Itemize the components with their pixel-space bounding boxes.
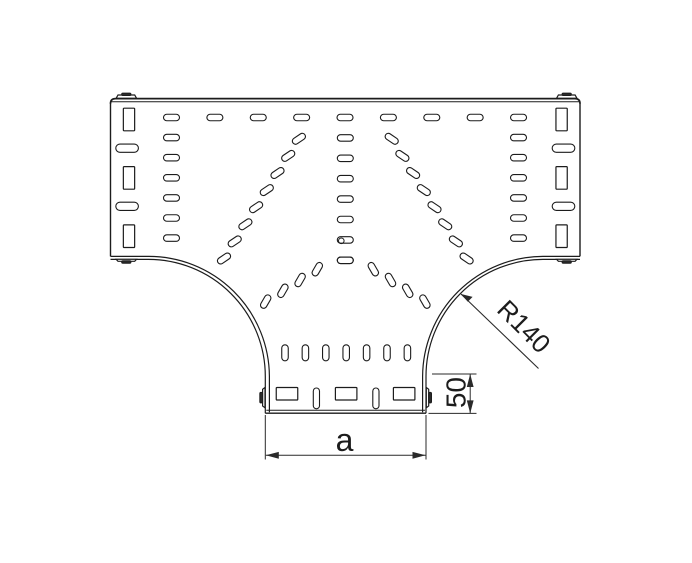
svg-text:R140: R140 xyxy=(491,294,556,359)
svg-text:50: 50 xyxy=(440,377,471,408)
svg-text:a: a xyxy=(336,422,354,458)
